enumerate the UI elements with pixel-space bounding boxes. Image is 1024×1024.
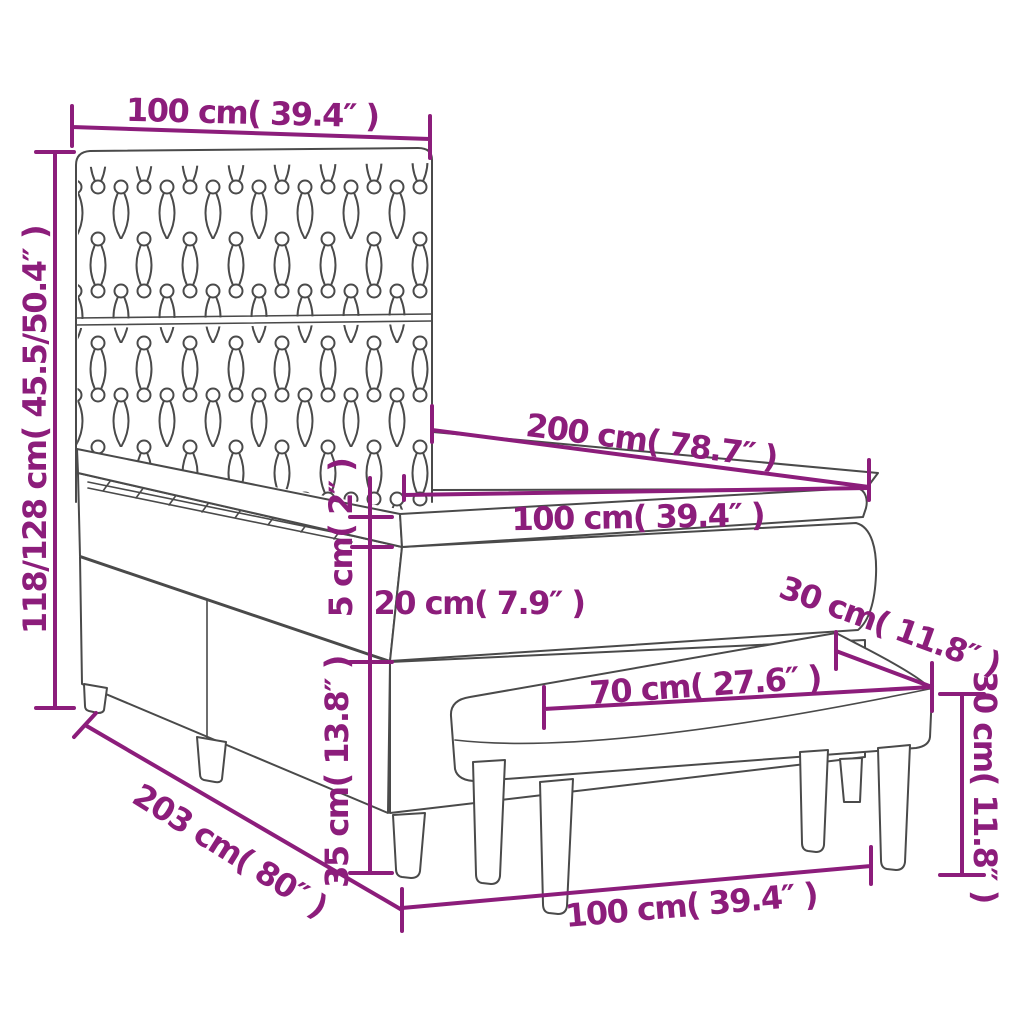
bench-leg [878, 745, 910, 870]
label-headboard-width: 100 cm( 39.4″ ) [126, 91, 379, 136]
bed-leg [393, 813, 425, 878]
label-mattress-thickness: 20 cm( 7.9″ ) [374, 584, 585, 622]
label-topper-thickness: 5 cm( 2″ ) [322, 459, 360, 618]
label-bench-height: 30 cm( 11.8″ ) [966, 671, 1004, 903]
bench-leg [800, 750, 828, 852]
label-bed-width: 100 cm( 39.4″ ) [511, 496, 764, 538]
bed-leg [197, 737, 226, 782]
diagram-stage: 100 cm( 39.4″ ) 118/128 cm( 45.5/50.4″ )… [0, 0, 1024, 1024]
bed-dimension-diagram: 100 cm( 39.4″ ) 118/128 cm( 45.5/50.4″ )… [0, 0, 1024, 1024]
bed-leg [840, 758, 862, 802]
label-base-height: 35 cm( 13.8″ ) [318, 656, 356, 888]
bench-leg [473, 760, 505, 884]
label-total-height: 118/128 cm( 45.5/50.4″ ) [16, 226, 54, 634]
bed-leg [84, 684, 107, 713]
